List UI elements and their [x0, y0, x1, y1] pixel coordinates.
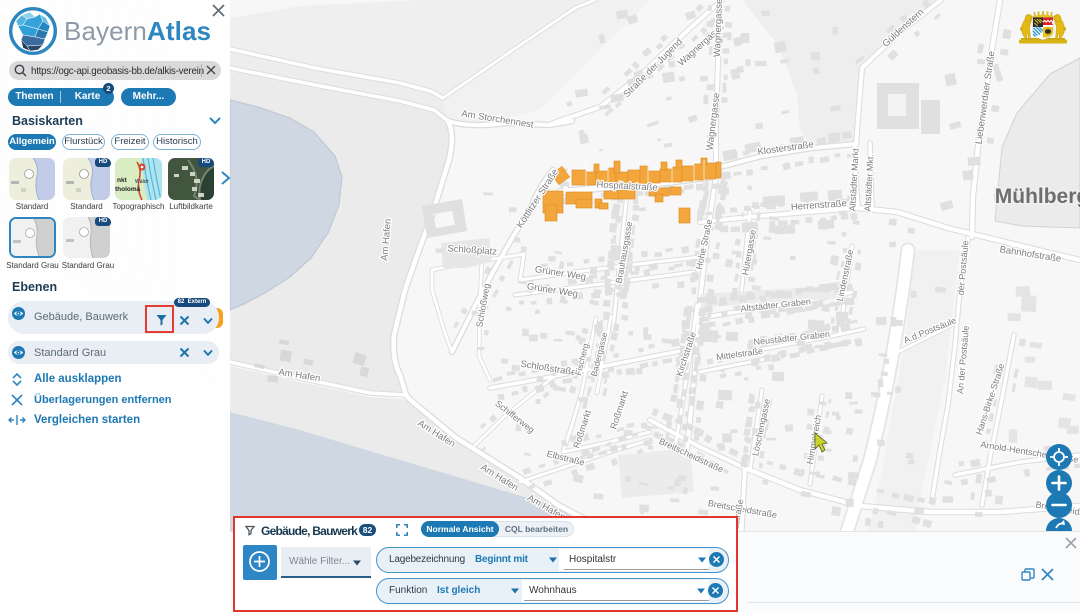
svg-text:nkt: nkt: [117, 177, 128, 184]
svg-text:Mühlberg: Mühlberg: [995, 185, 1080, 208]
svg-text:Wagnergasse: Wagnergasse: [712, 0, 725, 57]
svg-text:Wäldr: Wäldr: [135, 179, 149, 185]
svg-text:tholomä: tholomä: [115, 186, 141, 193]
